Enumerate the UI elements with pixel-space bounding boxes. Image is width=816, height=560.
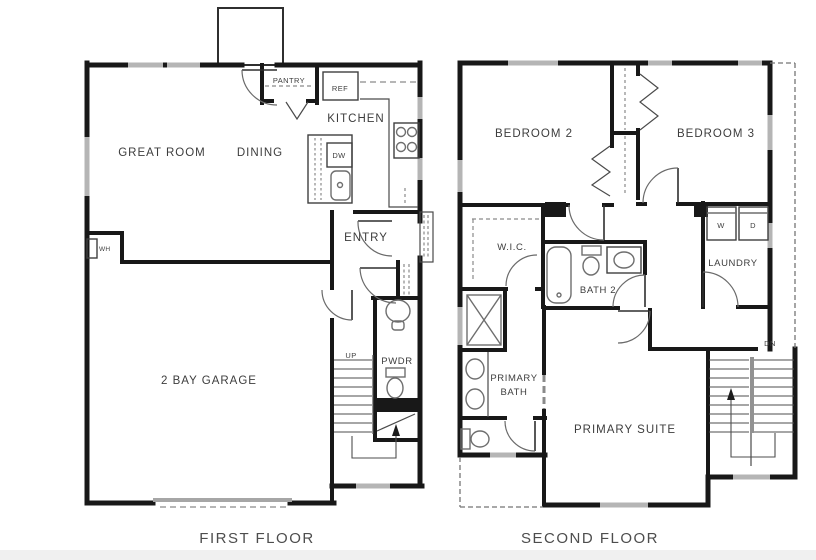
pantry-label: PANTRY [273, 76, 305, 85]
second-floor-plan: BEDROOM 2 BEDROOM 3 W.I.C. BATH 2 LAUNDR… [460, 63, 795, 547]
ref-label: REF [332, 84, 348, 93]
primary-bath-label-line2: BATH [500, 387, 527, 398]
second-floor-stairs [709, 357, 794, 466]
wall-corner-block [545, 202, 566, 217]
first-floor-doors [242, 70, 433, 320]
bedroom3-label: BEDROOM 3 [677, 128, 755, 140]
shower-icon [467, 295, 501, 345]
porch-outline [218, 8, 283, 65]
bifold-door-bedroom2-closet [592, 146, 610, 196]
entry-label: ENTRY [344, 232, 388, 244]
bedroom2-label: BEDROOM 2 [495, 128, 573, 140]
dining-label: DINING [237, 147, 283, 159]
second-floor-labels: BEDROOM 2 BEDROOM 3 W.I.C. BATH 2 LAUNDR… [490, 128, 775, 547]
first-floor-caption: FIRST FLOOR [199, 530, 314, 547]
stair-direction-arrow [392, 424, 400, 436]
up-label: UP [345, 351, 356, 360]
image-edge-strip [0, 550, 816, 560]
laundry-label: LAUNDRY [708, 258, 757, 269]
first-floor-labels: GREAT ROOM DINING KITCHEN PANTRY REF DW … [99, 76, 413, 547]
primary-bath-label-line1: PRIMARY [490, 373, 537, 384]
double-vanity-icon [466, 352, 488, 417]
stove-icon [394, 123, 419, 158]
pedestal-sink-icon [386, 300, 410, 330]
pwdr-label: PWDR [381, 356, 412, 367]
toilet-icon [386, 368, 405, 398]
great-room-label: GREAT ROOM [118, 147, 206, 159]
floor-plan-svg: GREAT ROOM DINING KITCHEN PANTRY REF DW … [0, 0, 816, 560]
garage-label: 2 BAY GARAGE [161, 375, 257, 387]
dn-label: DN [764, 339, 776, 348]
bifold-door-bedroom3-closet [640, 74, 658, 130]
toilet-icon [461, 429, 489, 449]
sink-icon [607, 247, 641, 273]
toilet-icon [582, 246, 601, 275]
kitchen-fixtures [87, 72, 419, 258]
first-floor-plan: GREAT ROOM DINING KITCHEN PANTRY REF DW … [87, 8, 433, 547]
wall-corner-block [694, 202, 708, 217]
kitchen-sink-icon [331, 171, 350, 200]
dw-label: DW [332, 151, 346, 160]
floor-plan-image: GREAT ROOM DINING KITCHEN PANTRY REF DW … [0, 0, 816, 560]
garage-door [153, 500, 292, 507]
powder-room-fixtures [386, 300, 410, 398]
first-floor-walls [87, 63, 422, 503]
stair-direction-arrow [727, 388, 735, 400]
dryer-label: D [750, 221, 756, 230]
bathtub-icon [547, 247, 571, 303]
wic-label: W.I.C. [497, 242, 526, 253]
stair-landing-wall [375, 398, 418, 412]
bath2-label: BATH 2 [580, 285, 616, 296]
kitchen-island [308, 135, 352, 203]
wh-label: WH [99, 246, 110, 253]
primary-suite-label: PRIMARY SUITE [574, 424, 676, 436]
kitchen-label: KITCHEN [327, 113, 384, 125]
washer-label: W [717, 221, 725, 230]
second-floor-caption: SECOND FLOOR [521, 530, 659, 547]
